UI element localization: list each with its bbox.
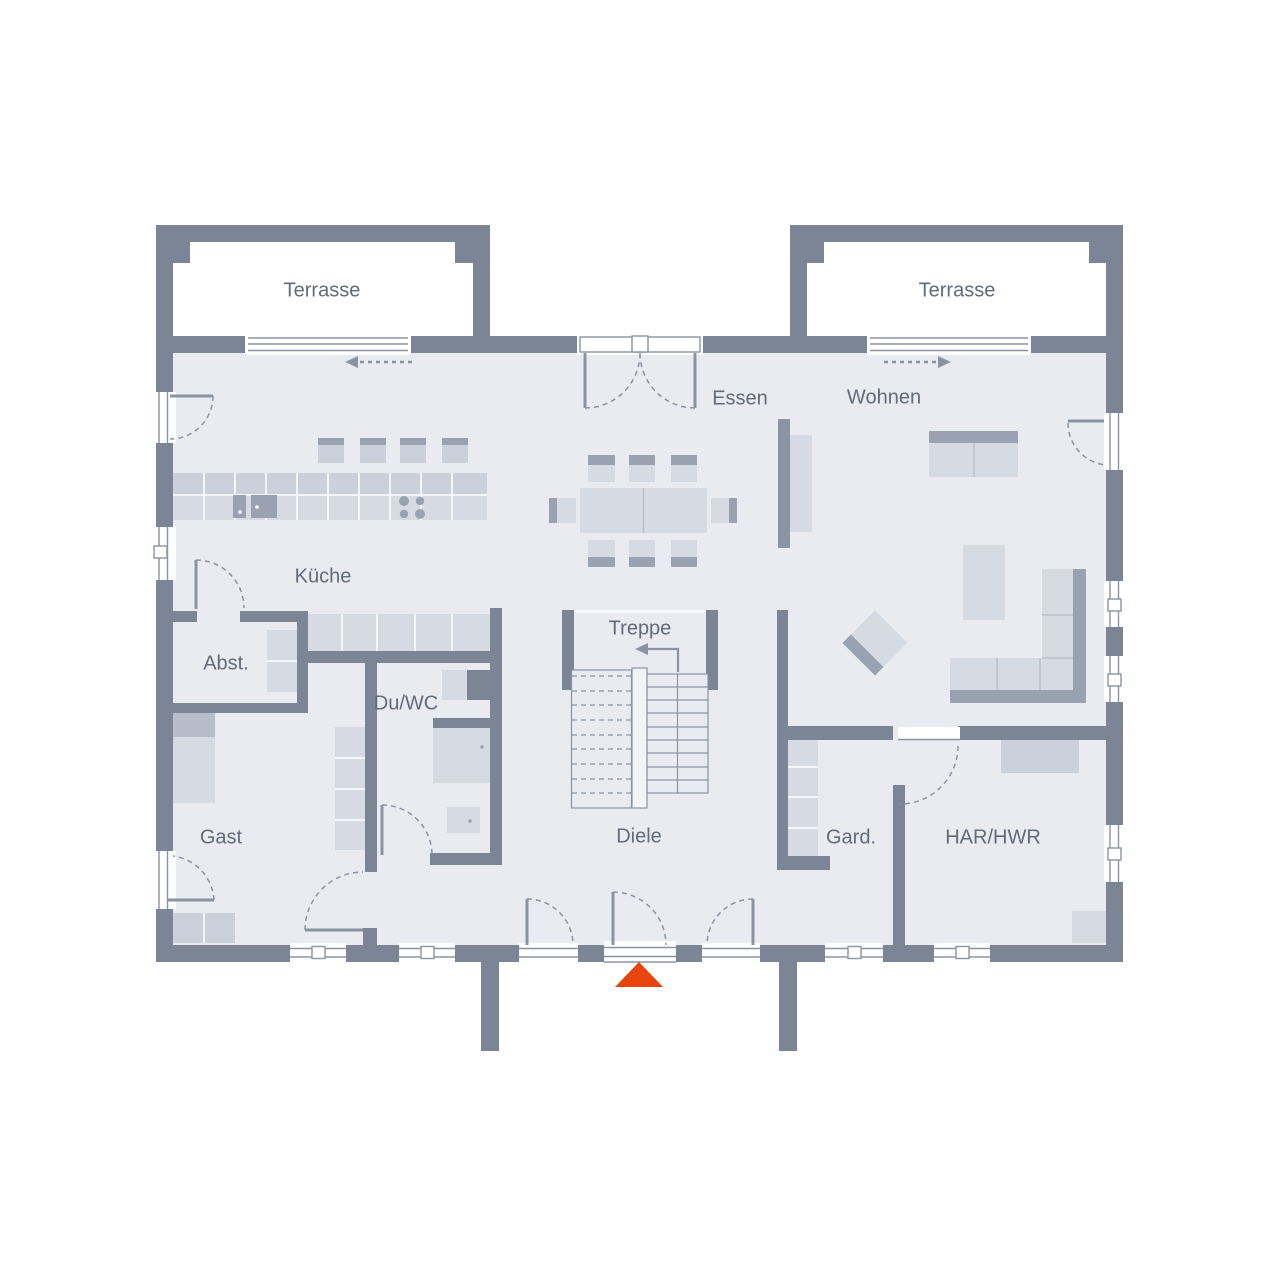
wall-porch-stub-left	[481, 962, 499, 1051]
wall-wardrobe-south-stub	[777, 856, 830, 870]
wall-guest-door-stub	[363, 928, 377, 945]
wall-living-south-a	[788, 726, 893, 740]
room-label-har-hwr: HAR/HWR	[945, 827, 1041, 850]
window-band-east-1	[1104, 581, 1125, 627]
bar-stool	[318, 438, 344, 463]
wall-storage-east	[297, 611, 308, 713]
coffee-table	[963, 545, 1005, 620]
utility-appliance	[1001, 740, 1079, 773]
bathroom-sink	[442, 670, 467, 700]
sofa-vertical-back	[1073, 569, 1086, 703]
room-label-gard: Gard.	[826, 827, 876, 850]
wall-terrace-left-corner-block	[455, 225, 490, 263]
entrance-door-band	[604, 941, 676, 964]
wall-stair-east	[706, 610, 718, 690]
window-band-south-1	[290, 943, 346, 964]
window-band-west	[153, 527, 176, 580]
utility-corner-unit	[1072, 911, 1106, 943]
wall-sink-stub	[467, 670, 490, 700]
sofa-horizontal-back	[950, 690, 1086, 703]
window-band-east-2	[1104, 656, 1125, 702]
dining-chair	[629, 540, 655, 567]
room-label-duwc: Du/WC	[374, 693, 438, 716]
room-label-abst: Abst.	[203, 653, 249, 676]
floorplan-canvas: Terrasse Terrasse Essen Wohnen Küche Abs…	[0, 0, 1280, 1280]
storage-shelf	[267, 630, 297, 692]
wall-porch-stub-right	[779, 962, 797, 1051]
wall-storage-north-a	[156, 611, 197, 622]
guest-bed	[173, 737, 215, 803]
wall-wardrobe-utility	[893, 785, 905, 945]
bar-stool	[360, 438, 386, 463]
guest-dresser	[173, 913, 235, 943]
bar-stool	[442, 438, 468, 463]
living-sideboard	[929, 431, 1018, 477]
room-label-kueche: Küche	[295, 566, 352, 589]
dining-chair	[588, 455, 615, 482]
wall-kitchen-south	[303, 651, 502, 663]
door-leaf-utility	[898, 727, 960, 740]
kitchen-counter-top-row	[173, 473, 487, 495]
window-band-south-4	[934, 943, 990, 964]
dining-chair	[629, 455, 655, 482]
wall-living-south-b	[958, 726, 1106, 740]
toilet	[447, 807, 480, 833]
wall-terrace-left-north	[156, 225, 490, 242]
sliding-door-band-terrace-right	[867, 334, 1031, 355]
guest-closet	[335, 727, 365, 850]
dining-table	[580, 488, 707, 533]
sofa-horizontal-seat	[950, 658, 1073, 690]
door-band-west-upper	[153, 392, 176, 443]
bar-stool	[400, 438, 426, 463]
dining-chair	[671, 455, 697, 482]
room-label-gast: Gast	[200, 827, 242, 850]
partition-shelf	[790, 435, 812, 532]
wall-stair-west	[562, 610, 574, 690]
door-band-south-left	[519, 943, 578, 964]
wall-bath-partial	[433, 718, 502, 728]
dining-chair	[711, 498, 737, 523]
wall-terrace-right-north	[790, 225, 1123, 242]
wardrobe-closet	[788, 737, 818, 858]
wall-bath-east	[490, 663, 502, 865]
room-label-wohnen: Wohnen	[847, 387, 921, 410]
wall-hall-living	[777, 610, 788, 870]
dining-chair	[671, 540, 697, 567]
window-band-south-3	[825, 943, 883, 964]
room-label-diele: Diele	[616, 826, 662, 849]
door-band-south-right	[702, 943, 760, 964]
room-label-essen: Essen	[712, 388, 768, 411]
dining-chair	[588, 540, 615, 567]
wall-terrace-right-corner-block	[1089, 225, 1123, 263]
window-band-south-2	[399, 943, 455, 964]
double-door-band-dining	[577, 334, 703, 355]
wall-terrace-right-corner-block	[790, 225, 824, 263]
door-band-east-living	[1104, 413, 1125, 470]
sliding-door-band-terrace-left	[245, 334, 411, 355]
wall-storage-south	[156, 703, 308, 713]
kitchen-lower-counter	[307, 614, 490, 651]
shower	[433, 728, 490, 783]
dining-chair	[549, 498, 576, 523]
room-label-treppe: Treppe	[609, 618, 672, 641]
wall-counter-end	[490, 608, 502, 663]
kitchen-counter-bottom-row	[173, 495, 487, 520]
room-divider-partition	[778, 419, 790, 548]
window-band-east-3	[1104, 825, 1125, 882]
guest-bed-pillow	[173, 713, 215, 737]
wall-terrace-left-corner-block	[156, 225, 190, 263]
door-band-west-guest	[153, 851, 176, 909]
room-label-terrasse-right: Terrasse	[919, 280, 996, 303]
room-label-terrasse-left: Terrasse	[284, 280, 361, 303]
wall-bath-south	[430, 853, 502, 865]
entrance-marker-icon	[615, 962, 663, 987]
